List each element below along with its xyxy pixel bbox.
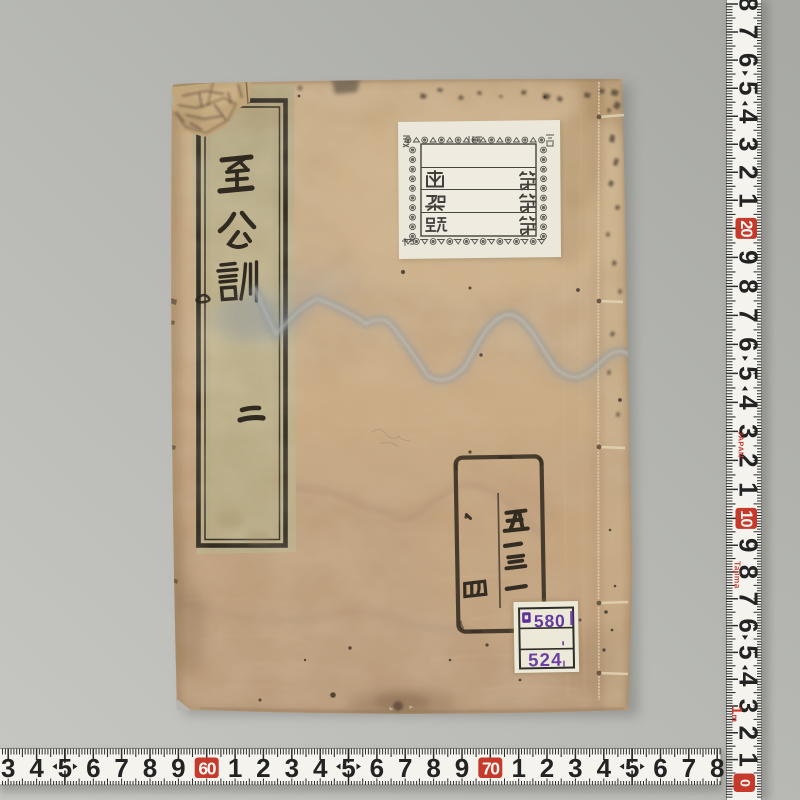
svg-text:2: 2	[734, 726, 764, 740]
svg-text:10: 10	[737, 510, 755, 527]
svg-text:6: 6	[734, 618, 764, 632]
svg-text:4: 4	[29, 753, 44, 783]
svg-text:6: 6	[370, 753, 384, 783]
svg-text:1: 1	[228, 753, 242, 783]
svg-text:524: 524	[528, 649, 563, 671]
svg-text:3: 3	[1, 753, 15, 783]
svg-text:6: 6	[653, 753, 667, 783]
svg-text:7: 7	[682, 753, 696, 783]
svg-text:4: 4	[734, 109, 764, 124]
svg-text:3: 3	[285, 753, 299, 783]
svg-text:4: 4	[597, 753, 612, 783]
svg-text:6: 6	[734, 53, 764, 67]
svg-text:3: 3	[568, 753, 582, 783]
svg-text:0: 0	[738, 779, 754, 787]
svg-text:5: 5	[734, 366, 764, 380]
svg-text:7: 7	[734, 308, 764, 322]
svg-text:5: 5	[734, 81, 764, 95]
svg-text:9: 9	[455, 753, 469, 783]
svg-text:7: 7	[398, 753, 412, 783]
svg-text:8: 8	[734, 279, 764, 293]
svg-text:8: 8	[710, 753, 724, 783]
svg-text:8: 8	[734, 0, 764, 11]
svg-text:Tajima: Tajima	[733, 561, 743, 589]
svg-text:60: 60	[198, 759, 216, 779]
svg-text:8: 8	[143, 753, 157, 783]
svg-text:6: 6	[86, 753, 100, 783]
svg-text:JAPAN: JAPAN	[737, 431, 746, 458]
svg-text:2: 2	[540, 753, 554, 783]
svg-text:1: 1	[734, 482, 764, 496]
svg-text:5: 5	[734, 645, 764, 659]
svg-text:1: 1	[734, 193, 764, 207]
svg-text:9: 9	[734, 250, 764, 264]
svg-text:7: 7	[734, 592, 764, 606]
svg-text:3: 3	[734, 137, 764, 151]
svg-text:4: 4	[734, 672, 764, 687]
svg-text:4: 4	[313, 753, 328, 783]
svg-text:8: 8	[426, 753, 440, 783]
svg-text:580: 580	[534, 611, 566, 632]
svg-text:1: 1	[511, 753, 525, 783]
svg-text:20: 20	[737, 220, 755, 237]
svg-text:9: 9	[171, 753, 185, 783]
svg-text:7: 7	[114, 753, 128, 783]
svg-text:6: 6	[734, 337, 764, 351]
svg-text:7: 7	[734, 25, 764, 39]
svg-text:1: 1	[734, 752, 764, 766]
svg-text:70: 70	[482, 759, 500, 779]
svg-text:4: 4	[734, 395, 764, 410]
svg-text:9: 9	[734, 538, 764, 552]
svg-text:2: 2	[256, 753, 270, 783]
svg-text:2: 2	[734, 165, 764, 179]
